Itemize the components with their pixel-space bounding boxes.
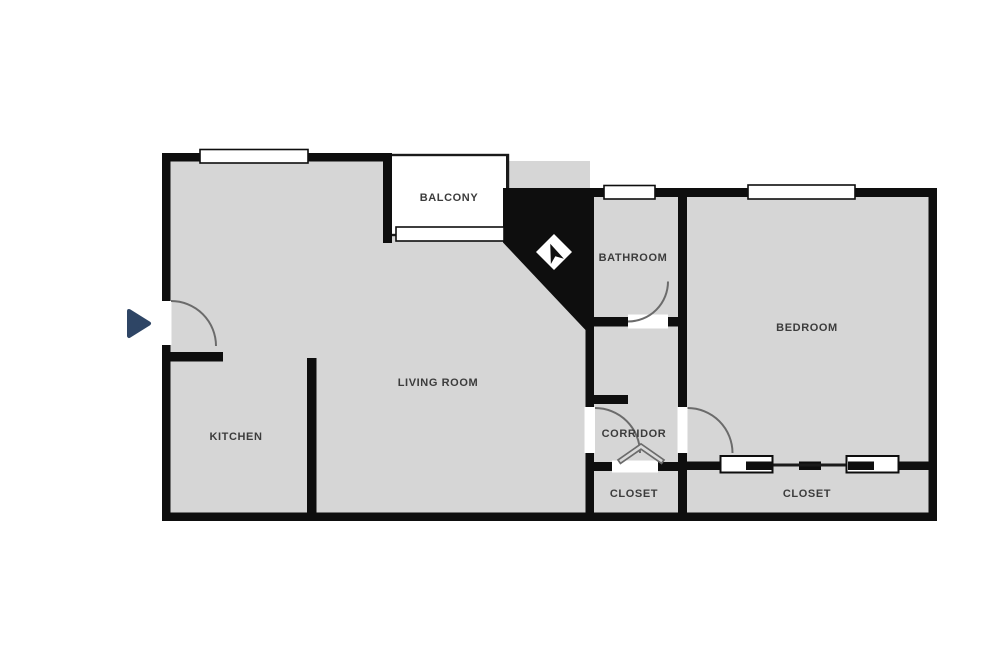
bedroom-window (748, 185, 855, 199)
bathroom-window (604, 186, 655, 200)
bathroom-label: BATHROOM (599, 252, 668, 264)
floor-plan-svg: BALCONY BATHROOM BEDROOM LIVING ROOM KIT… (0, 0, 1000, 666)
bedroom-door-opening (678, 407, 688, 453)
corridor-left-door-opening (585, 407, 596, 453)
balcony-window (396, 227, 504, 241)
living-room-window (200, 150, 308, 164)
closet-hall-label: CLOSET (610, 488, 658, 500)
balcony-label: BALCONY (420, 192, 479, 204)
living-room-label: LIVING ROOM (398, 377, 479, 389)
kitchen-label: KITCHEN (209, 431, 262, 443)
entry-door-opening (161, 301, 172, 345)
corridor-label: CORRIDOR (602, 428, 667, 440)
closet-bedroom-label: CLOSET (783, 488, 831, 500)
floor-plan-page: BALCONY BATHROOM BEDROOM LIVING ROOM KIT… (0, 0, 1000, 666)
entry-arrow-icon (129, 311, 149, 336)
bedroom-label: BEDROOM (776, 322, 838, 334)
